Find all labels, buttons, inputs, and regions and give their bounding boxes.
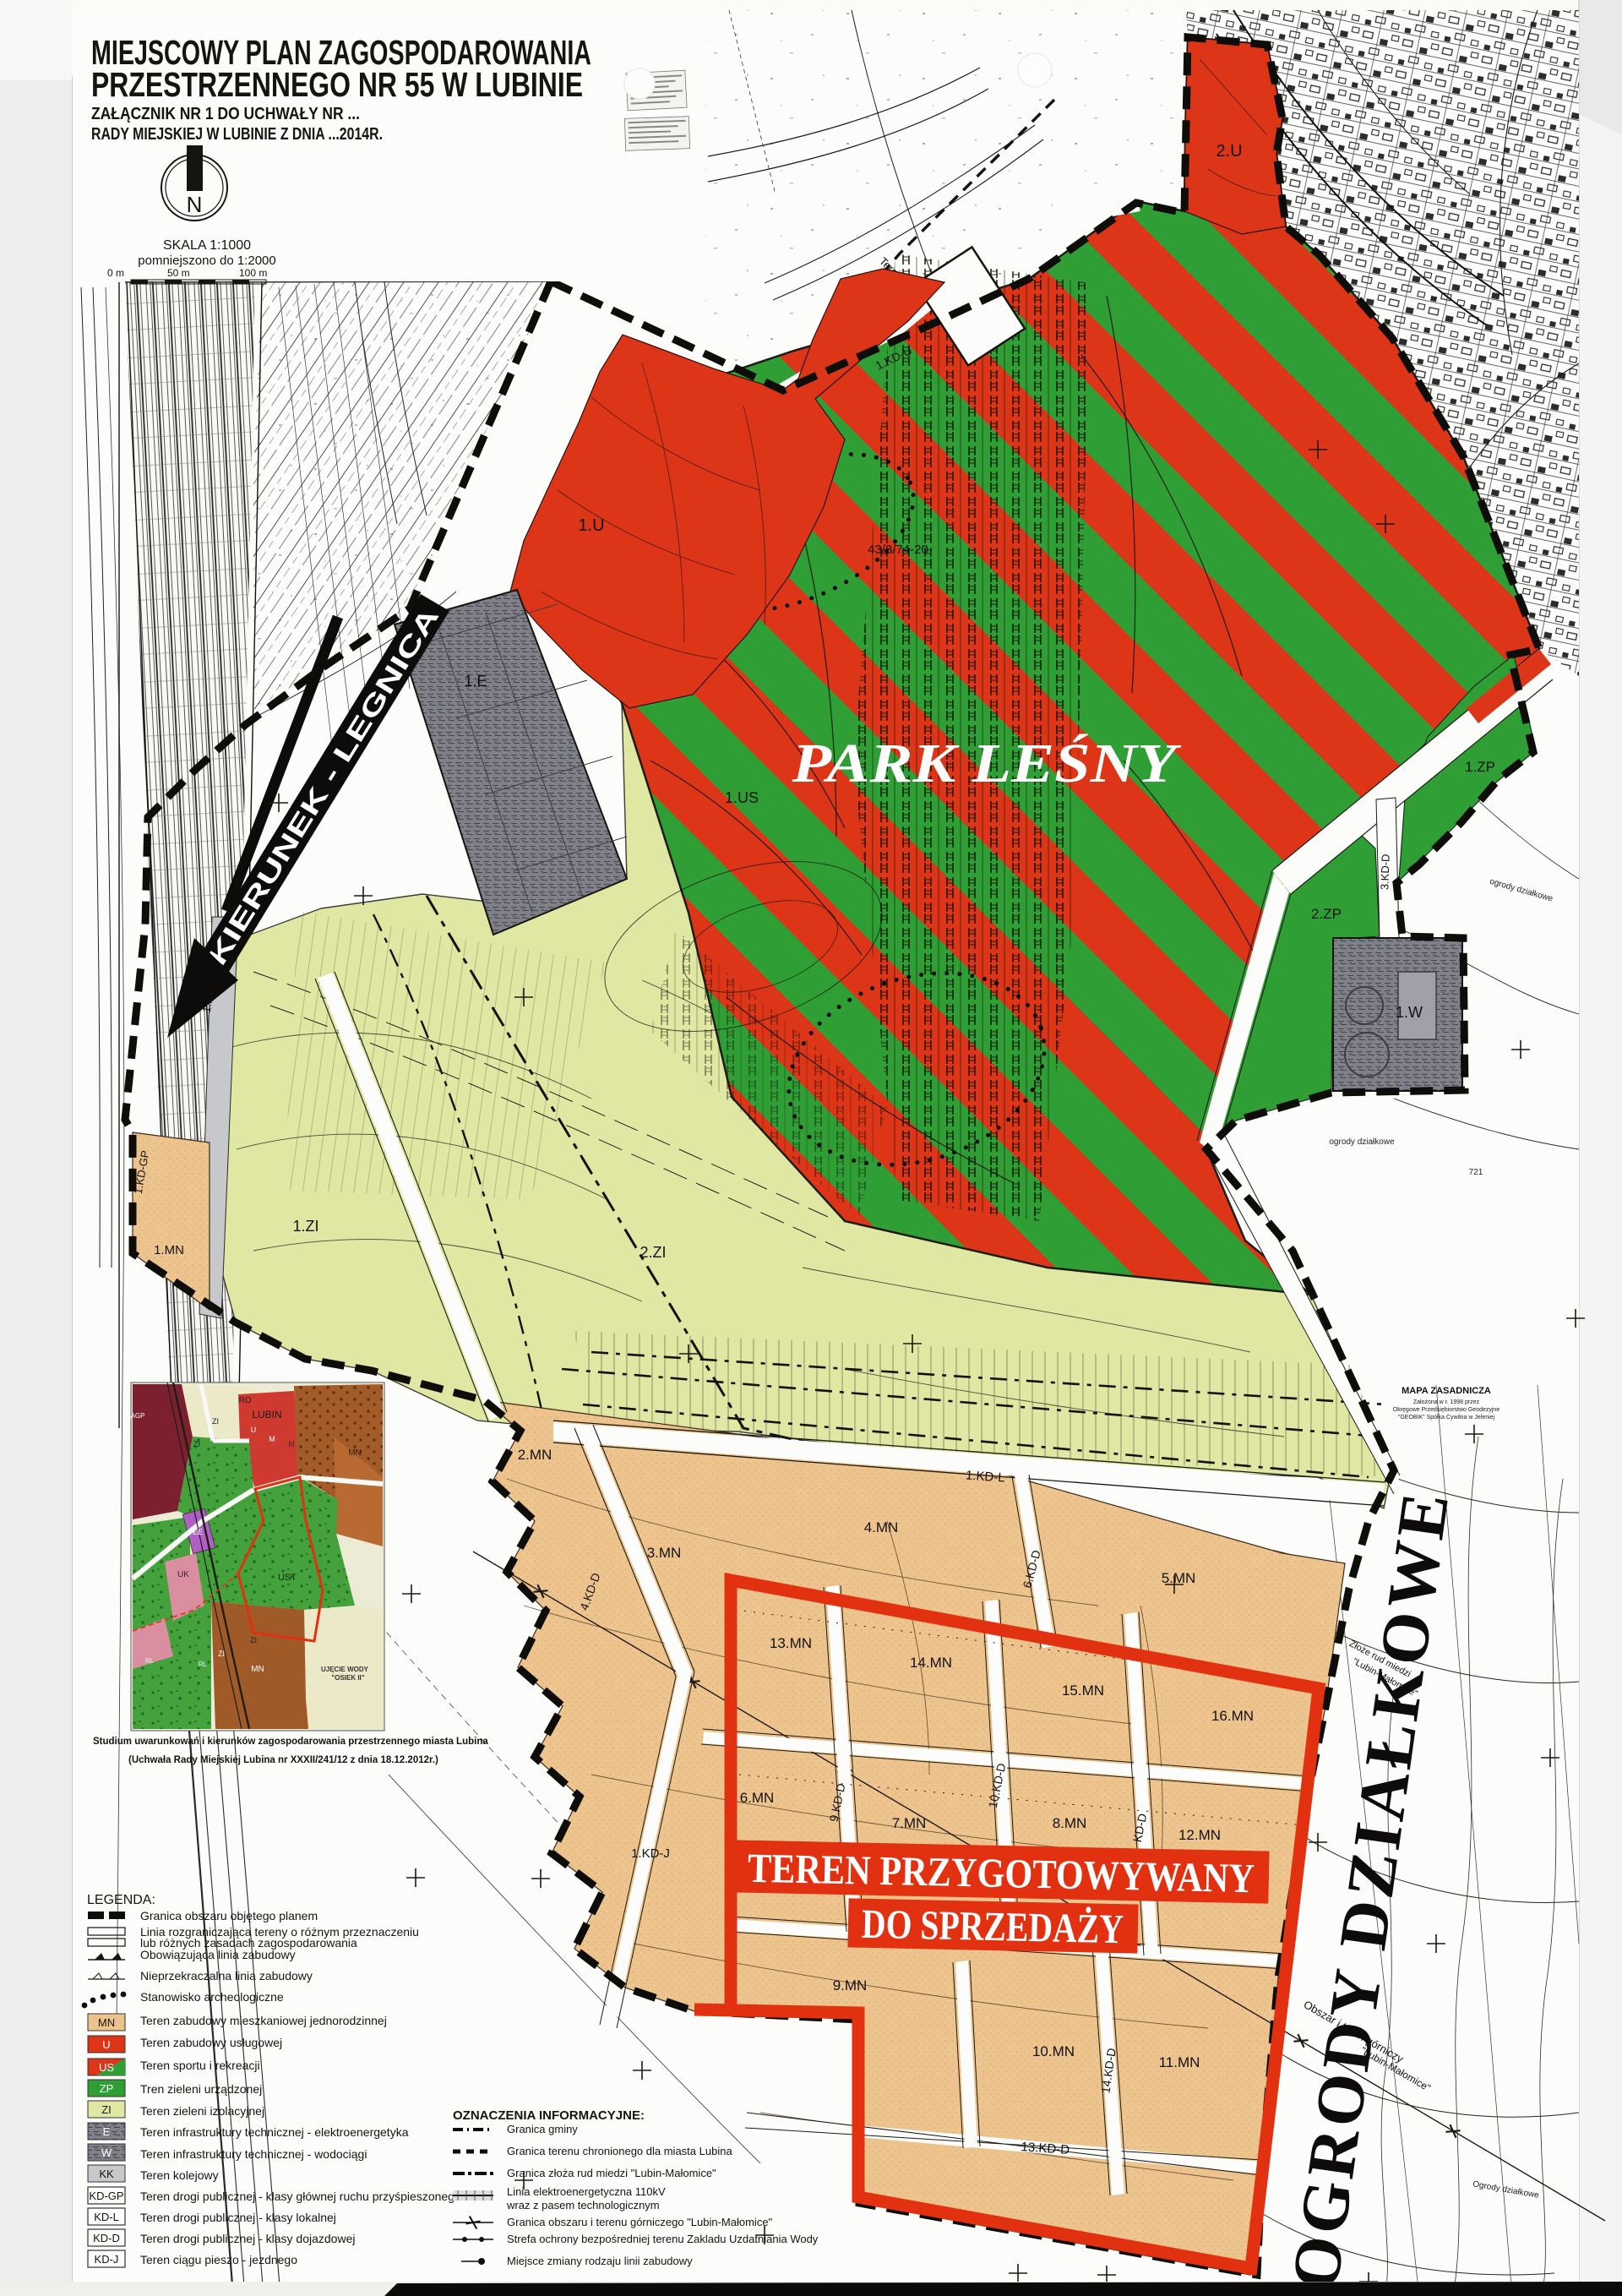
svg-text:Teren zabudowy usługowej: Teren zabudowy usługowej [140, 2036, 282, 2049]
svg-text:Teren sportu i rekreacji: Teren sportu i rekreacji [140, 2059, 260, 2072]
svg-text:43/3/74-20: 43/3/74-20 [868, 543, 928, 557]
svg-text:Granica gminy: Granica gminy [507, 2123, 578, 2135]
svg-text:DO SPRZEDAŻY: DO SPRZEDAŻY [861, 1901, 1124, 1952]
svg-text:1.US: 1.US [725, 789, 759, 806]
svg-text:RL: RL [145, 1657, 155, 1665]
svg-text:ZI: ZI [212, 1417, 219, 1426]
svg-text:KD-GP: KD-GP [89, 2190, 123, 2202]
svg-text:LEGENDA:: LEGENDA: [87, 1893, 155, 1907]
svg-text:KD-D: KD-D [93, 2232, 120, 2244]
svg-text:UJĘCIE WODY: UJĘCIE WODY [321, 1666, 369, 1673]
svg-text:14.MN: 14.MN [910, 1655, 952, 1671]
svg-text:15.MN: 15.MN [1062, 1682, 1104, 1699]
svg-text:OZNACZENIA INFORMACYJNE:: OZNACZENIA INFORMACYJNE: [453, 2108, 645, 2123]
svg-text:wraz z pasem technologicznym: wraz z pasem technologicznym [506, 2199, 660, 2211]
svg-text:KD-L: KD-L [94, 2211, 119, 2223]
svg-text:Teren infrastruktury techniczn: Teren infrastruktury technicznej - wodoc… [140, 2147, 367, 2161]
svg-text:16.MN: 16.MN [1211, 1708, 1254, 1724]
svg-text:1.U: 1.U [578, 516, 604, 535]
svg-text:ZAŁĄCZNIK NR 1 DO UCHWAŁY NR .: ZAŁĄCZNIK NR 1 DO UCHWAŁY NR ... [91, 105, 360, 123]
svg-text:ZI: ZI [101, 2103, 112, 2116]
svg-text:UST: UST [278, 1573, 297, 1583]
svg-text:4.MN: 4.MN [864, 1519, 899, 1535]
svg-text:0 m: 0 m [107, 267, 124, 279]
svg-text:12.MN: 12.MN [1178, 1827, 1221, 1843]
svg-text:Granica obszaru objętego plane: Granica obszaru objętego planem [140, 1909, 318, 1922]
svg-text:Strefa ochrony bezpośredniej t: Strefa ochrony bezpośredniej terenu Zakl… [507, 2233, 819, 2245]
svg-text:W: W [101, 2146, 112, 2159]
svg-text:Miejsce zmiany rodzaju linii z: Miejsce zmiany rodzaju linii zabudowy [507, 2255, 693, 2267]
svg-text:100 m: 100 m [239, 267, 267, 279]
svg-text:721: 721 [1469, 1168, 1483, 1177]
svg-text:pomniejszono do 1:2000: pomniejszono do 1:2000 [138, 254, 275, 268]
svg-text:Teren infrastruktury techniczn: Teren infrastruktury technicznej - elekt… [140, 2125, 409, 2139]
svg-text:RADY MIEJSKIEJ W LUBINIE Z DNI: RADY MIEJSKIEJ W LUBINIE Z DNIA ...2014R… [91, 125, 383, 144]
svg-text:(Uchwała Rady Miejskiej Lubina: (Uchwała Rady Miejskiej Lubina nr XXXII/… [128, 1755, 438, 1765]
svg-text:5.MN: 5.MN [1162, 1570, 1196, 1586]
svg-text:2.ZP: 2.ZP [1311, 906, 1342, 922]
svg-text:1.KD-L: 1.KD-L [965, 1468, 1005, 1485]
svg-text:UK: UK [177, 1570, 189, 1579]
svg-text:6.MN: 6.MN [740, 1790, 775, 1806]
svg-text:13.MN: 13.MN [770, 1635, 812, 1651]
svg-text:11.MN: 11.MN [1159, 2054, 1200, 2070]
svg-text:Linia elektroenergetyczna 110k: Linia elektroenergetyczna 110kV [507, 2185, 666, 2198]
svg-text:MAPA ZASADNICZA: MAPA ZASADNICZA [1402, 1386, 1491, 1396]
svg-text:Teren drogi publicznej - klasy: Teren drogi publicznej - klasy lokalnej [140, 2211, 336, 2224]
svg-text:1.ZP: 1.ZP [1465, 759, 1495, 775]
svg-text:ZI: ZI [250, 1636, 257, 1644]
svg-text:Teren kolejowy: Teren kolejowy [140, 2168, 219, 2182]
svg-text:ogrody działkowe: ogrody działkowe [1329, 1137, 1395, 1147]
svg-text:RO: RO [239, 1396, 252, 1405]
svg-text:8.MN: 8.MN [1053, 1815, 1087, 1831]
svg-text:M: M [269, 1435, 275, 1443]
svg-text:N: N [187, 192, 203, 217]
svg-text:U: U [251, 1426, 257, 1434]
svg-text:Teren drogi publicznej - klasy: Teren drogi publicznej - klasy głównej r… [140, 2190, 461, 2203]
svg-text:10.MN: 10.MN [1032, 2043, 1075, 2059]
svg-text:2.U: 2.U [1216, 142, 1242, 161]
svg-text:RL: RL [199, 1661, 208, 1668]
svg-text:1.E: 1.E [464, 673, 487, 690]
svg-text:2.ZI: 2.ZI [640, 1244, 666, 1261]
svg-text:Teren zabudowy mieszkaniowej j: Teren zabudowy mieszkaniowej jednorodzin… [140, 2014, 387, 2027]
svg-text:2.MN: 2.MN [518, 1447, 552, 1463]
svg-text:KD-J: KD-J [95, 2253, 119, 2266]
svg-text:MN: MN [251, 1665, 264, 1674]
svg-text:SKALA 1:1000: SKALA 1:1000 [163, 238, 251, 253]
svg-text:1.W: 1.W [1396, 1004, 1423, 1021]
svg-text:PRZESTRZENNEGO NR 55 W LUBINIE: PRZESTRZENNEGO NR 55 W LUBINIE [91, 65, 583, 104]
svg-text:Granica złoża rud miedzi "Lubi: Granica złoża rud miedzi "Lubin-Małomice… [507, 2167, 716, 2179]
svg-text:1.KD-J: 1.KD-J [631, 1846, 670, 1861]
svg-text:3.KD-D: 3.KD-D [1378, 854, 1391, 890]
svg-text:ZP: ZP [100, 2082, 114, 2095]
svg-text:KK: KK [99, 2168, 114, 2180]
svg-text:Okręgowe Przedsiębiorstwo Geod: Okręgowe Przedsiębiorstwo Geodezyjne [1393, 1407, 1500, 1413]
svg-text:EE: EE [193, 1528, 203, 1536]
svg-text:ZI: ZI [218, 1650, 225, 1658]
svg-text:PARK LEŚNY: PARK LEŚNY [791, 733, 1182, 794]
svg-text:Obowiązująca linia zabudowy: Obowiązująca linia zabudowy [140, 1948, 296, 1961]
svg-text:M: M [288, 1440, 295, 1448]
svg-text:Stanowisko archeologiczne: Stanowisko archeologiczne [140, 1990, 284, 2004]
svg-text:U: U [102, 2038, 110, 2051]
svg-text:LUBIN: LUBIN [252, 1409, 281, 1421]
svg-text:Teren drogi publicznej - klasy: Teren drogi publicznej - klasy dojazdowe… [140, 2232, 355, 2245]
svg-text:Teren ciągu pieszo - jezdnego: Teren ciągu pieszo - jezdnego [140, 2253, 297, 2266]
svg-text:Założona w r. 1998 przez: Założona w r. 1998 przez [1413, 1399, 1480, 1405]
svg-text:3.MN: 3.MN [647, 1545, 682, 1561]
svg-text:MN: MN [98, 2016, 115, 2029]
svg-text:Teren zieleni izolacyjnej: Teren zieleni izolacyjnej [140, 2104, 264, 2118]
svg-text:E: E [103, 2125, 111, 2138]
svg-text:"OSIEK II": "OSIEK II" [331, 1674, 364, 1682]
svg-text:Granica obszaru i terenu górni: Granica obszaru i terenu górniczego "Lub… [507, 2216, 773, 2228]
svg-text:US: US [99, 2061, 114, 2074]
svg-text:1.MN: 1.MN [154, 1243, 184, 1257]
svg-text:1.ZI: 1.ZI [292, 1218, 318, 1235]
svg-text:"GEOBIK" Spółka Cywilna w Jele: "GEOBIK" Spółka Cywilna w Jeleniej [1398, 1415, 1495, 1421]
svg-text:Nieprzekraczalna linia zabudow: Nieprzekraczalna linia zabudowy [140, 1969, 313, 1982]
svg-text:ZI: ZI [193, 1440, 200, 1448]
svg-text:Granica terenu chronionego dla: Granica terenu chronionego dla miasta Lu… [507, 2145, 732, 2157]
svg-text:AGP: AGP [131, 1412, 145, 1420]
svg-text:MN: MN [348, 1448, 362, 1458]
svg-text:7.MN: 7.MN [892, 1815, 927, 1831]
svg-text:Studium uwarunkowań i kierunkó: Studium uwarunkowań i kierunków zagospod… [93, 1737, 488, 1747]
svg-text:9.MN: 9.MN [833, 1977, 868, 1993]
svg-text:Tren zieleni urządzonej: Tren zieleni urządzonej [140, 2082, 262, 2096]
svg-text:50 m: 50 m [167, 267, 190, 279]
